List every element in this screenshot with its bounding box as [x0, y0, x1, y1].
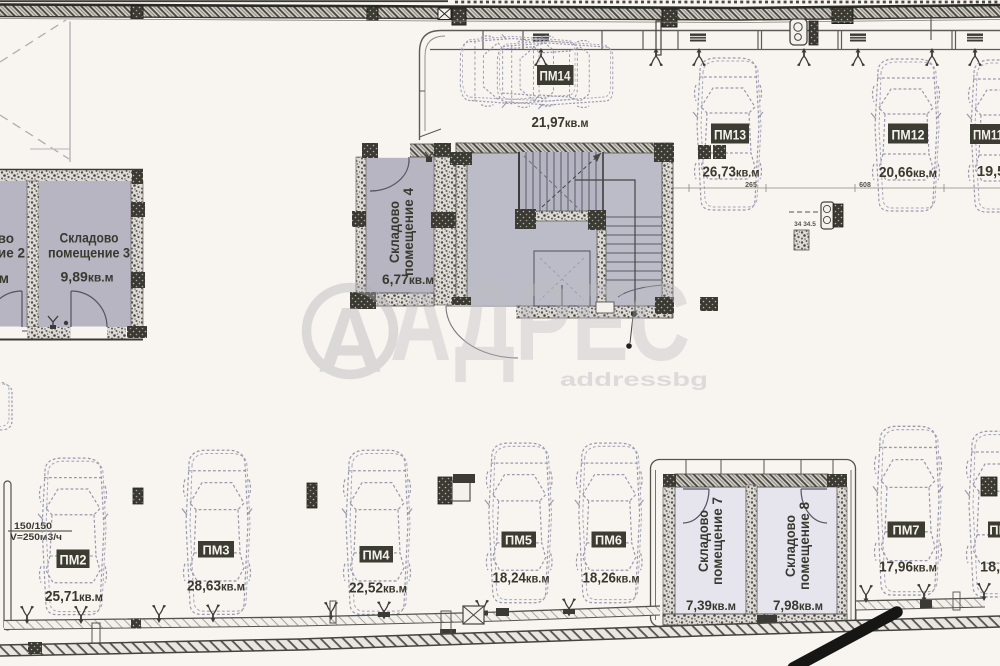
svg-text:ПМ5: ПМ5 [505, 533, 532, 548]
svg-text:АДРЕС: АДРЕС [390, 261, 690, 384]
svg-text:Складово: Складово [783, 515, 798, 577]
svg-text:помещение 8: помещение 8 [797, 502, 812, 590]
svg-text:Складово: Складово [387, 201, 402, 263]
svg-text:26,73кв.м: 26,73кв.м [703, 165, 760, 181]
svg-text:ПМ12: ПМ12 [892, 127, 925, 143]
svg-text:7,98кв.м: 7,98кв.м [773, 598, 823, 613]
svg-text:28,63кв.м: 28,63кв.м [187, 579, 245, 595]
svg-text:9,89кв.м: 9,89кв.м [0, 270, 9, 286]
svg-text:Складово: Складово [696, 510, 711, 572]
svg-text:Складово: Складово [60, 231, 119, 246]
svg-text:Складово: Складово [0, 231, 14, 246]
svg-text:ПМ3: ПМ3 [203, 543, 230, 558]
svg-text:18,26кв.м: 18,26кв.м [583, 571, 640, 587]
svg-text:19,5: 19,5 [977, 164, 1000, 180]
svg-text:20,66кв.м: 20,66кв.м [879, 165, 937, 181]
svg-text:18,3: 18,3 [980, 560, 1000, 576]
svg-text:265: 265 [745, 182, 757, 189]
svg-text:ПМ13: ПМ13 [714, 127, 746, 143]
svg-text:ПМ6: ПМ6 [595, 533, 622, 548]
svg-text:помещение 2: помещение 2 [0, 246, 25, 261]
svg-text:ПМ11: ПМ11 [973, 127, 1000, 143]
svg-text:ПМ4: ПМ4 [363, 548, 391, 563]
svg-text:помещение 3: помещение 3 [48, 246, 130, 261]
svg-text:22,52кв.м: 22,52кв.м [349, 581, 407, 597]
svg-text:17,96кв.м: 17,96кв.м [879, 560, 937, 576]
svg-text:9,89кв.м: 9,89кв.м [61, 269, 114, 285]
svg-text:34 34.5: 34 34.5 [794, 221, 816, 228]
svg-text:21,97кв.м: 21,97кв.м [532, 115, 589, 131]
svg-text:18,24кв.м: 18,24кв.м [493, 571, 550, 587]
svg-text:25,71кв.м: 25,71кв.м [45, 589, 103, 605]
svg-text:ПМ8: ПМ8 [989, 523, 1000, 538]
svg-text:помещение 7: помещение 7 [710, 497, 725, 585]
svg-text:ПМ2: ПМ2 [60, 553, 87, 568]
svg-text:addressbg: addressbg [560, 370, 708, 391]
svg-text:7,39кв.м: 7,39кв.м [686, 598, 736, 613]
svg-text:ПМ14: ПМ14 [540, 68, 571, 84]
svg-text:А: А [317, 288, 383, 392]
svg-text:608: 608 [859, 182, 871, 189]
svg-text:V=250м3/ч: V=250м3/ч [10, 532, 62, 543]
svg-text:ПМ7: ПМ7 [893, 523, 920, 538]
